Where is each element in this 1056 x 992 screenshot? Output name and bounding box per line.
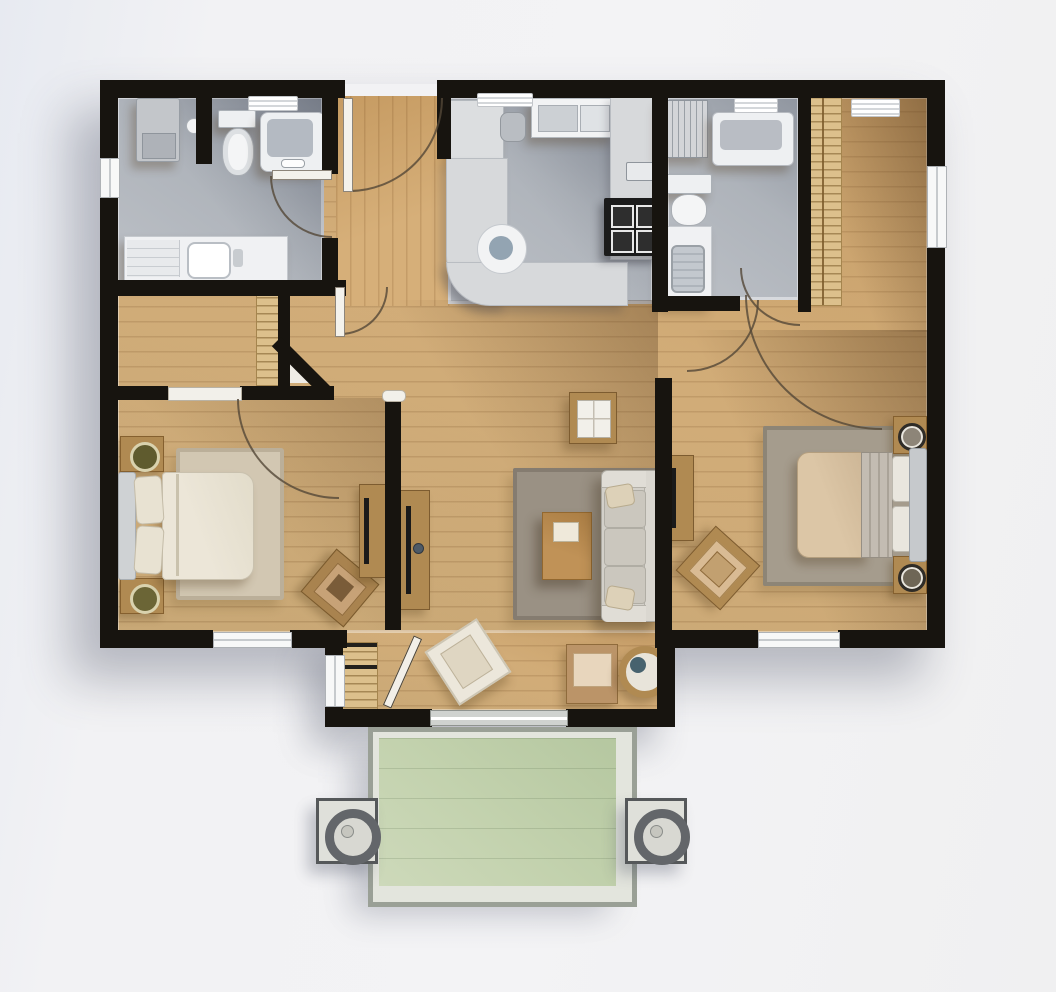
table-paper: [553, 522, 579, 542]
kitchen-sink-round: [477, 224, 527, 274]
module-basin-left: [538, 105, 578, 132]
wall-extension-right: [657, 648, 675, 727]
ceiling-light-bedroom2: [851, 99, 900, 117]
wall-bedroom1-north-a: [100, 386, 168, 400]
planter-core: [341, 825, 354, 838]
tub-basin: [720, 120, 782, 150]
vanity-drawers: [127, 240, 180, 277]
kitchen-counter-bottom-arm: [446, 262, 628, 306]
tv-icon: [406, 506, 411, 594]
tv-console-bedroom1: [359, 484, 387, 578]
cookbook-icon: [626, 162, 654, 181]
module-basin-right: [580, 105, 610, 132]
wall-kitchen-bathroom2-divider: [652, 80, 668, 312]
toilet-bathroom2: [664, 174, 712, 194]
wall-divider-cap: [382, 390, 406, 402]
planter-ring-icon: [634, 809, 690, 865]
nightstand-bedroom1-bottom: [120, 578, 164, 614]
console-knob: [413, 543, 424, 554]
entry-door-leaf: [343, 98, 353, 192]
tv-icon: [364, 498, 369, 564]
ceiling-vent-bathroom2: [734, 98, 778, 113]
wall-bathroom1-south: [100, 280, 346, 296]
washer-drum: [142, 133, 176, 159]
burner-icon: [611, 205, 634, 228]
washer-dryer: [136, 98, 180, 162]
bedroom1-door-threshold: [168, 387, 242, 401]
planter-core: [650, 825, 663, 838]
wall-bottom-right-b: [838, 630, 945, 648]
vanity-sink: [187, 242, 231, 279]
floor-plan-canvas: [0, 0, 1056, 992]
tub-faucet-icon: [281, 159, 305, 168]
toilet-bowl-bathroom1: [222, 128, 254, 176]
bathtub-bathroom1: [260, 112, 326, 172]
tv-console-living: [400, 490, 430, 610]
side-table-tray: [569, 392, 617, 444]
counter-sink-module: [531, 98, 615, 138]
sofa-pillow: [604, 585, 635, 612]
bed-bedroom2: [797, 448, 925, 560]
sofa-cushion: [604, 528, 646, 566]
coffee-table: [542, 512, 592, 580]
ceiling-vent-kitchen: [477, 93, 533, 107]
wall-top-left: [100, 80, 345, 98]
wall-shelf-niche: [278, 282, 290, 388]
sliding-patio-door: [430, 710, 568, 726]
kitchen-canister: [500, 112, 526, 142]
nightstand-bedroom1-top: [120, 436, 164, 472]
table-bowl-icon: [630, 657, 646, 673]
plant-bowl-icon: [130, 442, 160, 472]
tray-top: [577, 400, 611, 438]
planter-column-right: [625, 798, 687, 864]
hall-door-leaf: [335, 287, 345, 337]
plant-bowl-icon: [130, 584, 160, 614]
wall-bedroom1-living-divider: [385, 396, 401, 630]
bed-bedroom1: [118, 470, 252, 580]
wall-extension-bottom-a: [325, 709, 432, 727]
ceiling-vent-bathroom1: [248, 96, 298, 111]
window-south-bedroom1: [213, 632, 292, 648]
tub-basin: [267, 119, 313, 157]
pillow: [133, 475, 164, 525]
sofa: [601, 470, 661, 622]
window-west-bathroom1: [100, 158, 120, 198]
burner-icon: [611, 230, 634, 253]
bathroom1-door-leaf: [272, 170, 332, 180]
wall-extension-left-a: [325, 630, 343, 655]
vanity-bathroom2: [662, 226, 712, 306]
window-east-bedroom2: [927, 166, 947, 248]
decor-ring-icon: [898, 564, 926, 592]
decor-ring-icon: [898, 423, 926, 451]
blanket-fold: [861, 452, 893, 558]
wall-bottom-right-a: [655, 630, 758, 648]
wall-bathroom1-east-upper: [322, 80, 338, 174]
wall-left-upper: [100, 80, 118, 158]
planter-ring-icon: [325, 809, 381, 865]
vanity-sink: [671, 245, 705, 293]
window-south-bedroom2: [758, 632, 840, 648]
patio-deck: [379, 738, 616, 886]
wall-bottom-left-a: [100, 630, 213, 648]
chair-cushion: [573, 653, 612, 687]
toilet-bowl-bathroom2: [671, 194, 707, 226]
wall-bathroom1-partition: [196, 80, 212, 164]
wall-right-lower: [927, 246, 945, 648]
vanity-bathroom1: [124, 236, 288, 282]
wall-living-bedroom2-divider: [655, 378, 672, 632]
window-west-extension: [325, 655, 345, 707]
planter-column-left: [316, 798, 378, 864]
headboard: [909, 448, 927, 562]
toilet-bathroom1: [218, 110, 256, 128]
chair-cushion: [440, 634, 493, 689]
duvet: [797, 452, 871, 558]
armchair-extension-right: [566, 644, 618, 704]
bathtub-bathroom2: [712, 112, 794, 166]
kitchen-tall-cabinet: [448, 100, 504, 160]
wall-right-upper: [927, 80, 945, 166]
wall-left-lower: [100, 196, 118, 648]
blanket-fold-line: [176, 474, 179, 576]
pillow: [133, 525, 164, 575]
sink-basin: [489, 236, 513, 260]
vanity-faucet-icon: [233, 249, 243, 267]
